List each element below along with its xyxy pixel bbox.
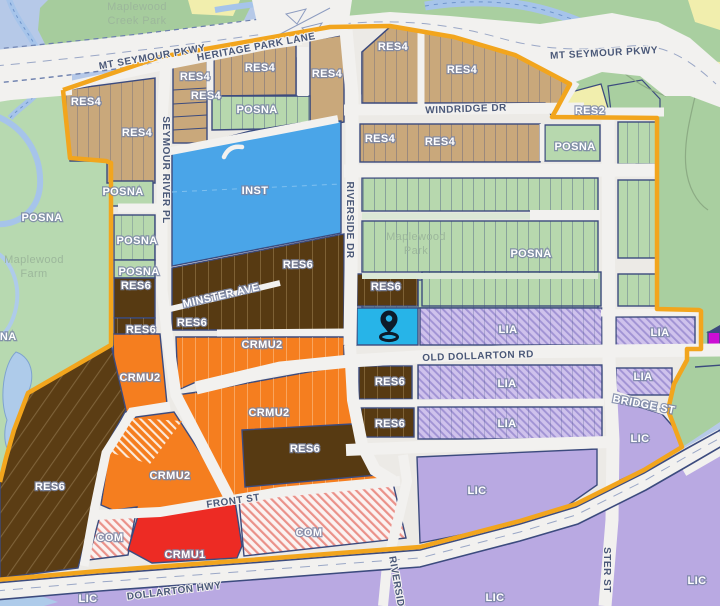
svg-text:RES6: RES6 [290, 443, 320, 455]
svg-text:CRMU1: CRMU1 [164, 549, 205, 561]
svg-text:LIC: LIC [486, 592, 505, 604]
svg-text:POSNA: POSNA [118, 266, 159, 278]
svg-text:RES6: RES6 [371, 281, 401, 293]
svg-text:Maplewood: Maplewood [386, 231, 446, 243]
svg-text:RES4: RES4 [71, 96, 102, 108]
svg-text:LIC: LIC [688, 575, 707, 587]
svg-text:RES2: RES2 [575, 105, 605, 117]
svg-text:RES4: RES4 [312, 68, 343, 80]
svg-text:LIA: LIA [651, 327, 670, 339]
svg-text:POSNA: POSNA [102, 186, 143, 198]
svg-text:LIA: LIA [498, 418, 517, 430]
svg-text:POSNA: POSNA [236, 104, 277, 116]
svg-text:RIVERSIDE DR: RIVERSIDE DR [344, 181, 355, 258]
svg-text:RES4: RES4 [378, 41, 409, 53]
svg-text:RES4: RES4 [180, 71, 211, 83]
svg-text:RES4: RES4 [447, 64, 478, 76]
svg-text:POSNA: POSNA [116, 235, 157, 247]
svg-text:COM: COM [97, 532, 124, 544]
svg-text:LIA: LIA [499, 324, 518, 336]
svg-text:RES4: RES4 [122, 127, 153, 139]
svg-text:LIC: LIC [79, 593, 98, 605]
svg-text:RES6: RES6 [375, 376, 405, 388]
svg-text:RES4: RES4 [425, 136, 456, 148]
svg-text:Farm: Farm [20, 268, 47, 280]
svg-text:LIA: LIA [498, 378, 517, 390]
svg-text:RES6: RES6 [35, 481, 65, 493]
svg-text:CRMU2: CRMU2 [149, 470, 190, 482]
svg-text:RES4: RES4 [365, 133, 396, 145]
svg-text:RES6: RES6 [375, 418, 405, 430]
svg-text:Maplewood: Maplewood [107, 1, 167, 13]
svg-text:INST: INST [242, 185, 269, 197]
svg-text:POSNA: POSNA [0, 331, 17, 343]
svg-text:RES4: RES4 [245, 62, 276, 74]
svg-text:POSNA: POSNA [554, 141, 595, 153]
svg-text:LIC: LIC [631, 433, 650, 445]
svg-text:STER ST: STER ST [601, 547, 612, 593]
svg-text:RES6: RES6 [283, 259, 313, 271]
svg-text:POSNA: POSNA [21, 212, 62, 224]
svg-text:CRMU2: CRMU2 [248, 407, 289, 419]
svg-text:Park: Park [404, 245, 428, 257]
svg-text:Maplewood: Maplewood [4, 254, 64, 266]
svg-text:CRMU2: CRMU2 [119, 372, 160, 384]
svg-text:LIA: LIA [634, 371, 653, 383]
svg-text:RES4: RES4 [191, 90, 222, 102]
svg-text:Creek Park: Creek Park [107, 15, 166, 27]
svg-text:SEYMOUR RIVER PL: SEYMOUR RIVER PL [160, 116, 171, 223]
svg-text:POSNA: POSNA [510, 248, 551, 260]
svg-text:COM: COM [296, 527, 323, 539]
svg-text:RES6: RES6 [126, 324, 156, 336]
svg-text:RES6: RES6 [177, 317, 207, 329]
svg-text:CRMU2: CRMU2 [241, 339, 282, 351]
svg-text:RES6: RES6 [121, 280, 151, 292]
svg-text:LIC: LIC [468, 485, 487, 497]
